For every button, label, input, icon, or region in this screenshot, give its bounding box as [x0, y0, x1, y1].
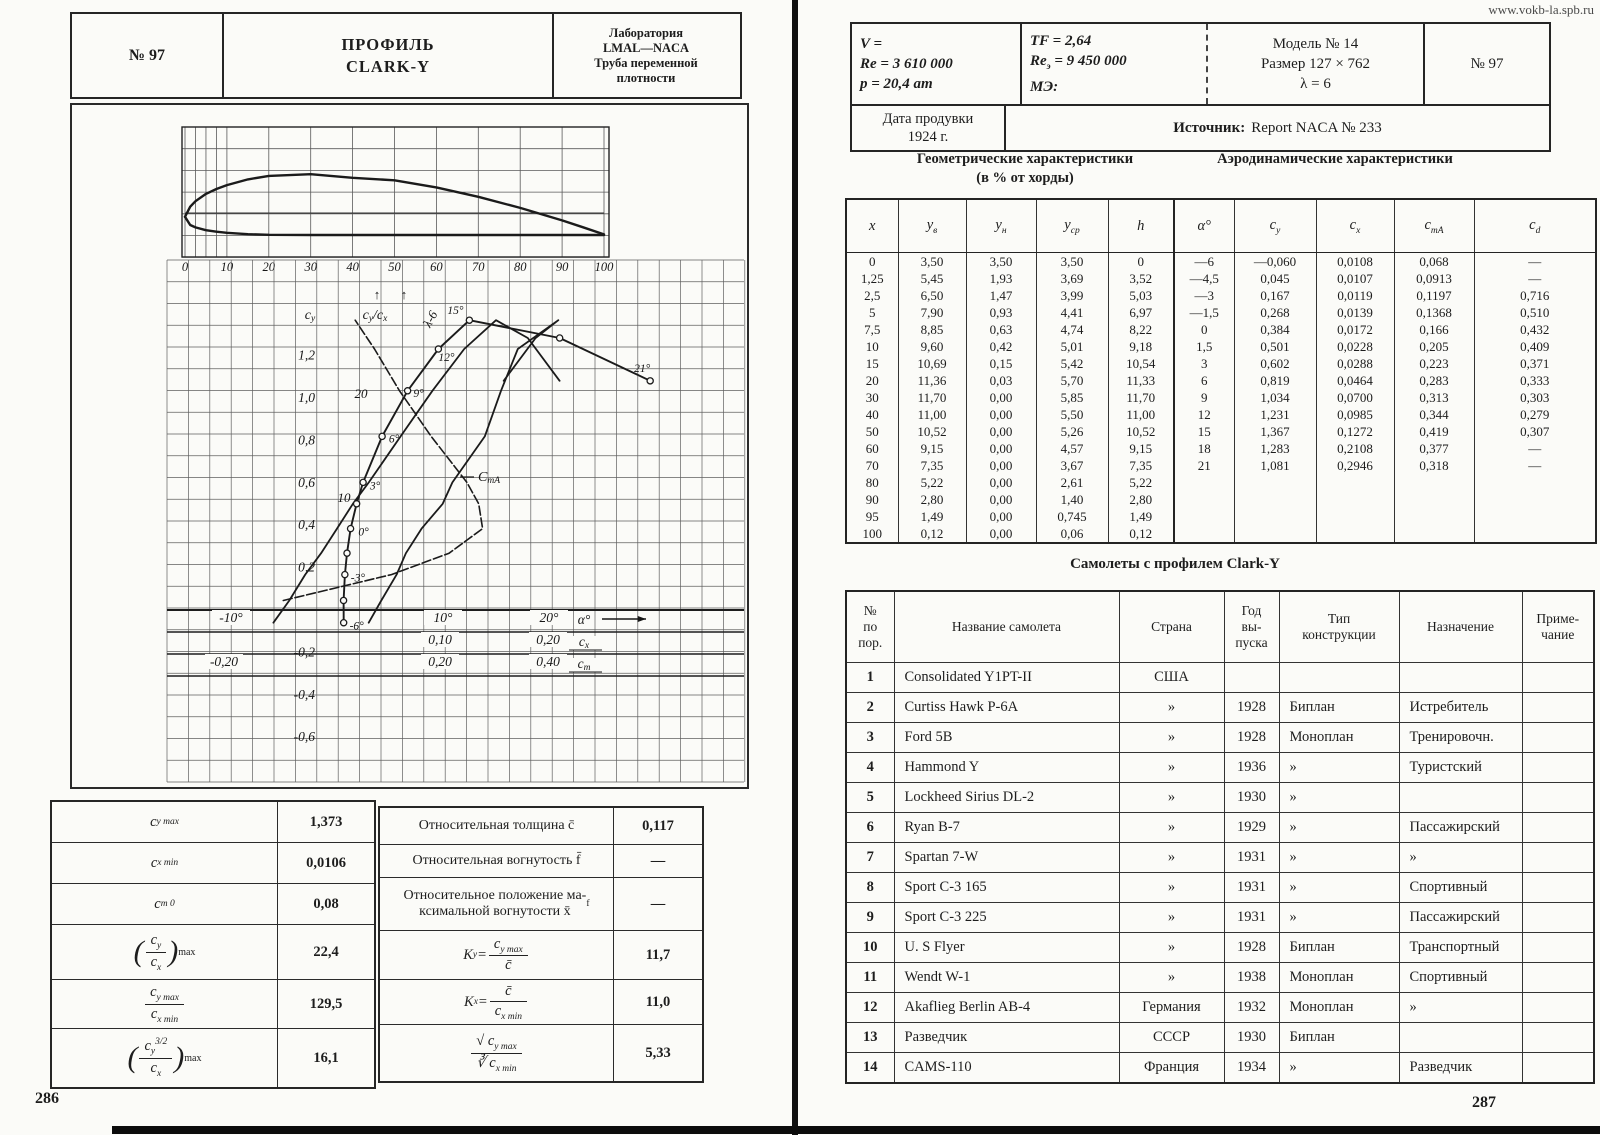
geometric-section-title: Геометрические характеристики (в % от хо…	[885, 150, 1165, 188]
formula-value: 129,5	[278, 980, 374, 1028]
profile-number-right: № 97	[1423, 24, 1549, 104]
table-cell: Sport C-3 225	[894, 903, 1119, 933]
table-cell: »	[1119, 723, 1224, 753]
table-cell: 0,63	[966, 321, 1036, 338]
table-cell: 5,42	[1036, 355, 1108, 372]
svg-text:12°: 12°	[438, 352, 455, 364]
table-cell: »	[1119, 903, 1224, 933]
table-cell	[1316, 525, 1394, 543]
svg-text:21°: 21°	[634, 363, 651, 375]
table-cell: 7,35	[1108, 457, 1174, 474]
svg-text:-0,2: -0,2	[294, 644, 316, 659]
table-cell	[1394, 474, 1474, 491]
coefficients-summary-table: cy max1,373cx min0,0106cm 00,08(cycx)max…	[50, 800, 376, 1089]
table-cell	[1522, 783, 1594, 813]
table-row: 902,800,001,402,80	[846, 491, 1596, 508]
table-cell: Биплан	[1279, 693, 1399, 723]
table-cell: 6,97	[1108, 304, 1174, 321]
svg-text:1,2: 1,2	[298, 348, 315, 363]
column-header: cy	[1234, 199, 1316, 253]
table-cell: »	[1119, 813, 1224, 843]
column-header: cd	[1474, 199, 1596, 253]
table-cell: 10,52	[898, 423, 966, 440]
svg-text:cy/cx: cy/cx	[363, 308, 389, 324]
table-cell: 3,67	[1036, 457, 1108, 474]
profile-number: № 97	[72, 14, 224, 97]
table-cell: Туристский	[1399, 753, 1522, 783]
profile-title-line2: CLARK-Y	[346, 56, 430, 78]
text-line: Reэ = 9 450 000	[1030, 51, 1127, 77]
test-conditions-header: V =Re = 3 610 000p = 20,4 ат TF = 2,64Re…	[850, 22, 1551, 152]
table-cell: 2,80	[898, 491, 966, 508]
formula-value: 0,117	[614, 808, 702, 844]
table-cell: 0,819	[1234, 372, 1316, 389]
table-cell: 0,00	[966, 525, 1036, 543]
formula-row: cx min0,0106	[52, 842, 374, 883]
table-cell: 9,18	[1108, 338, 1174, 355]
table-cell: —3	[1174, 287, 1234, 304]
table-cell: 0,0119	[1316, 287, 1394, 304]
table-cell: Франция	[1119, 1053, 1224, 1084]
table-cell: 1,367	[1234, 423, 1316, 440]
table-cell: 0,00	[966, 508, 1036, 525]
table-cell: Ryan B-7	[894, 813, 1119, 843]
column-header: yв	[898, 199, 966, 253]
formula-label: cy maxcx min	[52, 980, 278, 1028]
table-cell: 3,69	[1036, 270, 1108, 287]
table-cell: Спортивный	[1399, 873, 1522, 903]
table-cell	[1399, 1023, 1522, 1053]
column-header: α°	[1174, 199, 1234, 253]
table-cell: 70	[846, 457, 898, 474]
aircraft-table-title: Самолеты с профилем Clark-Y	[845, 556, 1505, 573]
table-cell: 0,2946	[1316, 457, 1394, 474]
svg-text:10: 10	[338, 490, 352, 505]
table-row: 3011,700,005,8511,7091,0340,07000,3130,3…	[846, 389, 1596, 406]
column-header: x	[846, 199, 898, 253]
table-cell: 0,93	[966, 304, 1036, 321]
aircraft-row: 1Consolidated Y1PT-IIСША	[846, 663, 1594, 693]
text-line: Лаборатория	[609, 26, 683, 41]
table-cell: »	[1119, 693, 1224, 723]
aircraft-row: 4Hammond Y»1936»Туристский	[846, 753, 1594, 783]
svg-text:cy: cy	[305, 308, 316, 324]
table-cell	[1394, 491, 1474, 508]
table-cell: 1,47	[966, 287, 1036, 304]
formula-value: 1,373	[278, 802, 374, 842]
table-cell: Моноплан	[1279, 723, 1399, 753]
svg-text:0,6: 0,6	[298, 475, 315, 490]
table-cell	[1522, 963, 1594, 993]
table-cell: Consolidated Y1PT-II	[894, 663, 1119, 693]
table-cell: 0,12	[898, 525, 966, 543]
text-line: Re = 3 610 000	[860, 54, 953, 74]
table-cell: 5,22	[898, 474, 966, 491]
aircraft-row: 6Ryan B-7»1929»Пассажирский	[846, 813, 1594, 843]
table-cell: Тренировочн.	[1399, 723, 1522, 753]
aircraft-table: № по пор.Название самолетаСтранаГод вы- …	[845, 590, 1595, 1084]
aircraft-row: 9Sport C-3 225»1931»Пассажирский	[846, 903, 1594, 933]
text-line: V =	[860, 34, 882, 54]
table-cell: 0,0985	[1316, 406, 1394, 423]
table-cell: Lockheed Sirius DL-2	[894, 783, 1119, 813]
table-cell: Ford 5B	[894, 723, 1119, 753]
table-cell: Hammond Y	[894, 753, 1119, 783]
text-line: Размер 127 × 762	[1261, 54, 1370, 74]
table-cell: U. S Flyer	[894, 933, 1119, 963]
table-cell: 0	[1174, 321, 1234, 338]
table-cell: 0,501	[1234, 338, 1316, 355]
formula-label: cx min	[52, 843, 278, 883]
table-cell: 1,283	[1234, 440, 1316, 457]
table-cell: 0,00	[966, 440, 1036, 457]
table-cell: 3,52	[1108, 270, 1174, 287]
page-number-left: 286	[35, 1090, 59, 1108]
table-cell	[1474, 474, 1596, 491]
text-line: МЭ:	[1030, 77, 1058, 97]
table-cell: 80	[846, 474, 898, 491]
test-date-label: Дата продувки	[883, 110, 974, 128]
table-cell: 0,0464	[1316, 372, 1394, 389]
text-line: Модель № 14	[1273, 34, 1358, 54]
table-cell: 11	[846, 963, 894, 993]
table-cell: »	[1119, 933, 1224, 963]
table-cell: 11,36	[898, 372, 966, 389]
column-header: cx	[1316, 199, 1394, 253]
column-header: cmA	[1394, 199, 1474, 253]
table-cell: 5,03	[1108, 287, 1174, 304]
table-cell: —0,060	[1234, 253, 1316, 271]
svg-text:-0,20: -0,20	[210, 654, 238, 669]
table-cell: 0,0700	[1316, 389, 1394, 406]
table-cell: 0	[846, 253, 898, 271]
table-cell: Спортивный	[1399, 963, 1522, 993]
table-cell: Истребитель	[1399, 693, 1522, 723]
column-header: h	[1108, 199, 1174, 253]
table-cell: 1	[846, 663, 894, 693]
table-cell: 0,00	[966, 474, 1036, 491]
table-cell	[1316, 474, 1394, 491]
table-cell: 8	[846, 873, 894, 903]
column-header: Приме- чание	[1522, 591, 1594, 663]
table-cell: 3	[1174, 355, 1234, 372]
aircraft-row: 12Akaflieg Berlin AB-4Германия1932Монопл…	[846, 993, 1594, 1023]
table-cell: Sport C-3 165	[894, 873, 1119, 903]
table-cell: 1930	[1224, 1023, 1279, 1053]
table-cell	[1522, 873, 1594, 903]
table-cell: 5,01	[1036, 338, 1108, 355]
table-cell: Wendt W-1	[894, 963, 1119, 993]
left-page-header: № 97 ПРОФИЛЬ CLARK-Y ЛабораторияLMAL—NAC…	[70, 12, 742, 99]
table-cell: 1,081	[1234, 457, 1316, 474]
table-cell: »	[1279, 753, 1399, 783]
table-cell: 1929	[1224, 813, 1279, 843]
table-cell: 6	[1174, 372, 1234, 389]
table-cell	[1522, 1053, 1594, 1084]
table-cell: 0,15	[966, 355, 1036, 372]
table-cell: 0,03	[966, 372, 1036, 389]
formula-label: Kx = c̄cx min	[380, 980, 614, 1024]
table-cell: 60	[846, 440, 898, 457]
table-cell: 0,00	[966, 423, 1036, 440]
table-cell: »	[1119, 843, 1224, 873]
table-cell: 5,50	[1036, 406, 1108, 423]
table-cell: 10,54	[1108, 355, 1174, 372]
svg-text:0°: 0°	[358, 527, 369, 539]
formula-value: —	[614, 878, 702, 930]
table-cell: Akaflieg Berlin AB-4	[894, 993, 1119, 1023]
svg-text:α°: α°	[578, 612, 591, 627]
svg-text:0,20: 0,20	[536, 632, 560, 647]
table-cell: 3,99	[1036, 287, 1108, 304]
table-cell: 1932	[1224, 993, 1279, 1023]
table-cell: 11,00	[898, 406, 966, 423]
table-cell: 10,69	[898, 355, 966, 372]
table-cell: 13	[846, 1023, 894, 1053]
table-cell: 0,00	[966, 389, 1036, 406]
table-cell: »	[1119, 873, 1224, 903]
table-cell: 0,00	[966, 406, 1036, 423]
svg-text:15°: 15°	[447, 305, 464, 317]
column-header: Страна	[1119, 591, 1224, 663]
table-cell: —1,5	[1174, 304, 1234, 321]
table-cell: 3,50	[966, 253, 1036, 271]
table-cell: 30	[846, 389, 898, 406]
table-cell: 40	[846, 406, 898, 423]
formula-label: cm 0	[52, 884, 278, 924]
aircraft-row: 11Wendt W-1»1938МонопланСпортивный	[846, 963, 1594, 993]
table-cell: —	[1474, 440, 1596, 457]
formula-row: Kx = c̄cx min11,0	[380, 979, 702, 1024]
svg-text:9°: 9°	[413, 388, 424, 400]
table-cell	[1474, 491, 1596, 508]
formula-row: √ cy max∛ cx min5,33	[380, 1024, 702, 1081]
table-cell: 11,00	[1108, 406, 1174, 423]
svg-text:30: 30	[303, 260, 317, 274]
table-cell: 5,85	[1036, 389, 1108, 406]
svg-text:-6°: -6°	[350, 621, 365, 633]
aircraft-row: 5Lockheed Sirius DL-2»1930»	[846, 783, 1594, 813]
formula-row: cm 00,08	[52, 883, 374, 924]
table-cell: 0,377	[1394, 440, 1474, 457]
table-cell	[1522, 843, 1594, 873]
svg-text:0,20: 0,20	[428, 654, 452, 669]
table-cell	[1522, 663, 1594, 693]
table-row: 1000,120,000,060,12	[846, 525, 1596, 543]
table-row: 1510,690,155,4210,5430,6020,02880,2230,3…	[846, 355, 1596, 372]
svg-text:-0,6: -0,6	[294, 729, 316, 744]
table-cell: 1,49	[1108, 508, 1174, 525]
table-cell: 0,0913	[1394, 270, 1474, 287]
svg-text:-10°: -10°	[219, 610, 243, 625]
column-header: Тип конструкции	[1279, 591, 1399, 663]
table-cell: 1931	[1224, 903, 1279, 933]
clark-y-charts: 0102030405060708090100-6°-3°0°3°6°9°12°1…	[72, 105, 747, 787]
table-cell	[1474, 508, 1596, 525]
table-cell: 0,432	[1474, 321, 1596, 338]
table-cell: »	[1119, 963, 1224, 993]
table-cell	[1522, 693, 1594, 723]
test-date-cell: Дата продувки 1924 г.	[852, 106, 1006, 150]
table-cell: 9	[1174, 389, 1234, 406]
table-cell: 7,90	[898, 304, 966, 321]
svg-text:80: 80	[514, 260, 527, 274]
table-cell: 0,307	[1474, 423, 1596, 440]
svg-text:40: 40	[346, 260, 359, 274]
svg-text:-0,4: -0,4	[294, 687, 316, 702]
formula-value: 5,33	[614, 1025, 702, 1081]
formula-label: cy max	[52, 802, 278, 842]
svg-text:50: 50	[388, 260, 401, 274]
table-cell: Разведчик	[894, 1023, 1119, 1053]
table-row: 4011,000,005,5011,00121,2310,09850,3440,…	[846, 406, 1596, 423]
table-row: 2,56,501,473,995,03—30,1670,01190,11970,…	[846, 287, 1596, 304]
profile-title: ПРОФИЛЬ CLARK-Y	[224, 14, 552, 97]
formula-value: 11,7	[614, 931, 702, 979]
table-cell: 12	[1174, 406, 1234, 423]
svg-text:60: 60	[430, 260, 443, 274]
formula-row: cy maxcx min129,5	[52, 979, 374, 1028]
table-cell	[1522, 903, 1594, 933]
svg-text:20°: 20°	[540, 610, 560, 625]
aircraft-row: 7Spartan 7-W»1931»»	[846, 843, 1594, 873]
table-cell	[1522, 813, 1594, 843]
table-cell: 0,419	[1394, 423, 1474, 440]
table-cell	[1174, 508, 1234, 525]
table-cell	[1234, 491, 1316, 508]
table-cell	[1522, 723, 1594, 753]
svg-text:λ-6: λ-6	[419, 308, 441, 331]
svg-text:0: 0	[182, 260, 189, 274]
table-cell	[1174, 525, 1234, 543]
formula-label: (cy3/2cx)max	[52, 1029, 278, 1087]
table-cell	[1522, 753, 1594, 783]
table-row: 2011,360,035,7011,3360,8190,04640,2830,3…	[846, 372, 1596, 389]
table-cell	[1316, 508, 1394, 525]
table-cell: Curtiss Hawk P-6A	[894, 693, 1119, 723]
table-cell: 14	[846, 1053, 894, 1084]
table-cell: 0,0288	[1316, 355, 1394, 372]
column-header: Год вы- пуска	[1224, 591, 1279, 663]
aircraft-row: 13РазведчикСССР1930Биплан	[846, 1023, 1594, 1053]
table-row: 1,255,451,933,693,52—4,50,0450,01070,091…	[846, 270, 1596, 287]
formula-value: 16,1	[278, 1029, 374, 1087]
column-header: № по пор.	[846, 591, 894, 663]
table-cell	[1234, 525, 1316, 543]
table-row: 109,600,425,019,181,50,5010,02280,2050,4…	[846, 338, 1596, 355]
table-cell: 11,70	[898, 389, 966, 406]
table-cell: 1938	[1224, 963, 1279, 993]
table-cell: 0,409	[1474, 338, 1596, 355]
table-cell: 4,41	[1036, 304, 1108, 321]
table-cell: 0,223	[1394, 355, 1474, 372]
formula-label: Ky = cy maxc̄	[380, 931, 614, 979]
table-cell: —	[1474, 270, 1596, 287]
formula-label: Относительная вогнутость f̄	[380, 845, 614, 877]
table-cell: 0,279	[1474, 406, 1596, 423]
table-cell: 21	[1174, 457, 1234, 474]
table-cell: 0,716	[1474, 287, 1596, 304]
table-cell: 0,313	[1394, 389, 1474, 406]
table-cell: 50	[846, 423, 898, 440]
table-cell: 5,45	[898, 270, 966, 287]
table-cell: 12	[846, 993, 894, 1023]
table-cell: 10	[846, 338, 898, 355]
table-cell: 4,57	[1036, 440, 1108, 457]
watermark-url: www.vokb-la.spb.ru	[1398, 2, 1594, 18]
table-cell: 11,70	[1108, 389, 1174, 406]
table-cell: 0	[1108, 253, 1174, 271]
text-line: LMAL—NACA	[603, 41, 689, 56]
table-cell: 1,49	[898, 508, 966, 525]
table-cell: 1928	[1224, 933, 1279, 963]
table-cell: 20	[846, 372, 898, 389]
table-cell: 5,70	[1036, 372, 1108, 389]
table-cell: 7	[846, 843, 894, 873]
svg-text:0,8: 0,8	[298, 432, 315, 447]
table-cell: 0,00	[966, 457, 1036, 474]
table-cell: 0,283	[1394, 372, 1474, 389]
table-cell: —	[1474, 457, 1596, 474]
table-cell: 15	[1174, 423, 1234, 440]
model-cell: Модель № 14Размер 127 × 762λ = 6	[1206, 24, 1423, 104]
table-row: 03,503,503,500—6—0,0600,01080,068—	[846, 253, 1596, 271]
table-cell: »	[1279, 843, 1399, 873]
table-cell: »	[1399, 993, 1522, 1023]
table-row: 805,220,002,615,22	[846, 474, 1596, 491]
table-cell: 0,0107	[1316, 270, 1394, 287]
table-cell: 0,068	[1394, 253, 1474, 271]
formula-value: 22,4	[278, 925, 374, 979]
svg-text:6°: 6°	[389, 433, 400, 445]
table-cell: 1930	[1224, 783, 1279, 813]
formula-value: 0,08	[278, 884, 374, 924]
profile-title-line1: ПРОФИЛЬ	[341, 34, 434, 56]
table-cell: 0,1368	[1394, 304, 1474, 321]
table-cell: 18	[1174, 440, 1234, 457]
table-cell: 0,2108	[1316, 440, 1394, 457]
aerodynamic-section-title: Аэродинамические характеристики	[1195, 150, 1475, 169]
table-cell: 3,50	[898, 253, 966, 271]
table-cell: 0,0139	[1316, 304, 1394, 321]
svg-text:0,2: 0,2	[298, 560, 315, 575]
table-cell: 0,0108	[1316, 253, 1394, 271]
table-row: 707,350,003,677,35211,0810,29460,318—	[846, 457, 1596, 474]
table-cell: 2,61	[1036, 474, 1108, 491]
svg-text:↑: ↑	[374, 287, 381, 302]
table-cell: 0,333	[1474, 372, 1596, 389]
table-cell	[1394, 508, 1474, 525]
table-cell: 2	[846, 693, 894, 723]
table-cell: 0,510	[1474, 304, 1596, 321]
svg-text:3°: 3°	[369, 480, 381, 492]
table-row: 5010,520,005,2610,52151,3670,12720,4190,…	[846, 423, 1596, 440]
formula-row: Относительная толщина c̄0,117	[380, 808, 702, 844]
relative-parameters-table: Относительная толщина c̄0,117Относительн…	[378, 806, 704, 1083]
table-cell: 8,85	[898, 321, 966, 338]
table-cell: 5,22	[1108, 474, 1174, 491]
test-date-value: 1924 г.	[908, 128, 949, 146]
text-line: p = 20,4 ат	[860, 74, 933, 94]
table-cell: 0,12	[1108, 525, 1174, 543]
table-cell	[1224, 663, 1279, 693]
page-gutter-shadow	[792, 0, 798, 1135]
svg-text:100: 100	[595, 260, 615, 274]
formula-row: cy max1,373	[52, 802, 374, 842]
table-cell: 1931	[1224, 873, 1279, 903]
table-cell	[1522, 933, 1594, 963]
source-value: Report NACA № 233	[1251, 120, 1382, 137]
